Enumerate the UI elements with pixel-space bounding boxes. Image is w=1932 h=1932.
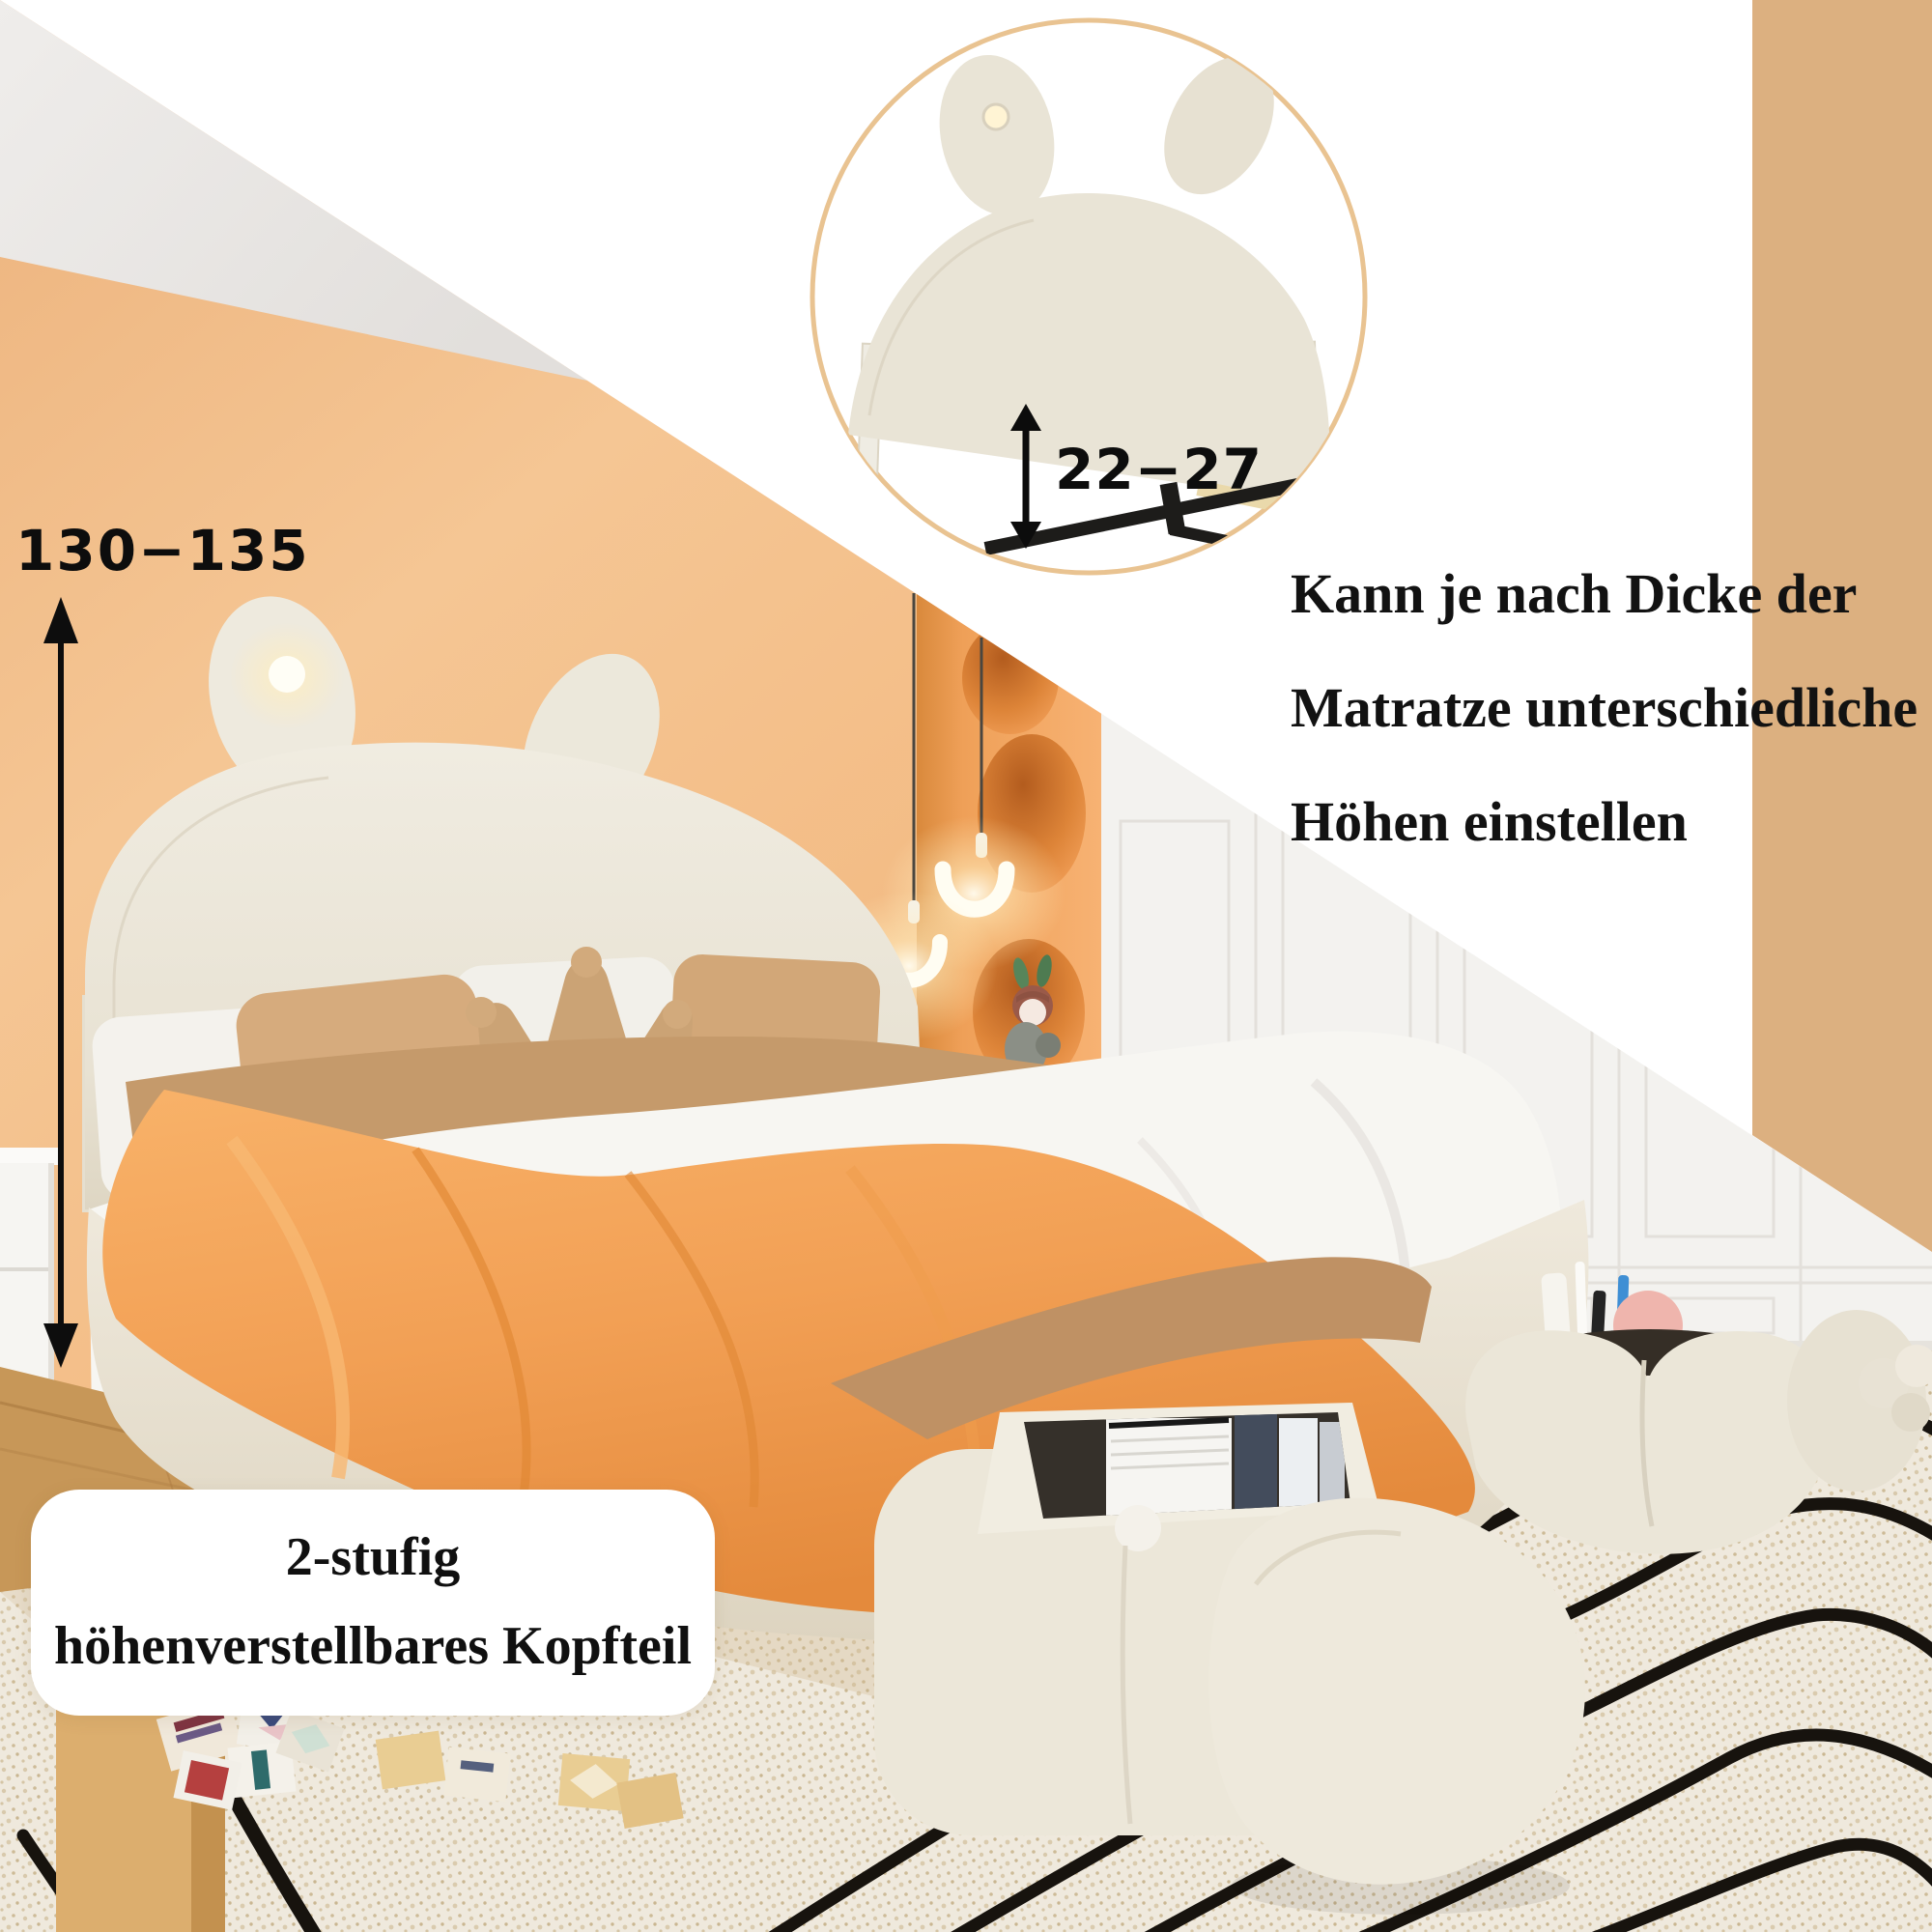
- books: [1106, 1414, 1345, 1519]
- inset-height-label: 22−27: [1055, 437, 1263, 502]
- adjustability-note: Kann je nach Dicke der Matratze untersch…: [1291, 537, 1932, 879]
- inset-ear-light: [983, 104, 1009, 129]
- headboard-height-label: 130−135: [15, 518, 310, 583]
- product-image: M: [0, 0, 1932, 1932]
- note-line-1: Kann je nach Dicke der: [1291, 537, 1932, 651]
- feature-label-card: 2-stufig höhenverstellbares Kopfteil: [31, 1490, 715, 1716]
- ear-light: [269, 656, 305, 693]
- note-line-2: Matratze unterschiedliche: [1291, 651, 1932, 765]
- feature-line-2: höhenverstellbares Kopfteil: [31, 1602, 715, 1690]
- nightstand: [0, 1148, 58, 1385]
- plush-ball: [1115, 1505, 1161, 1551]
- feature-line-1: 2-stufig: [31, 1513, 715, 1602]
- note-line-3: Höhen einstellen: [1291, 765, 1932, 879]
